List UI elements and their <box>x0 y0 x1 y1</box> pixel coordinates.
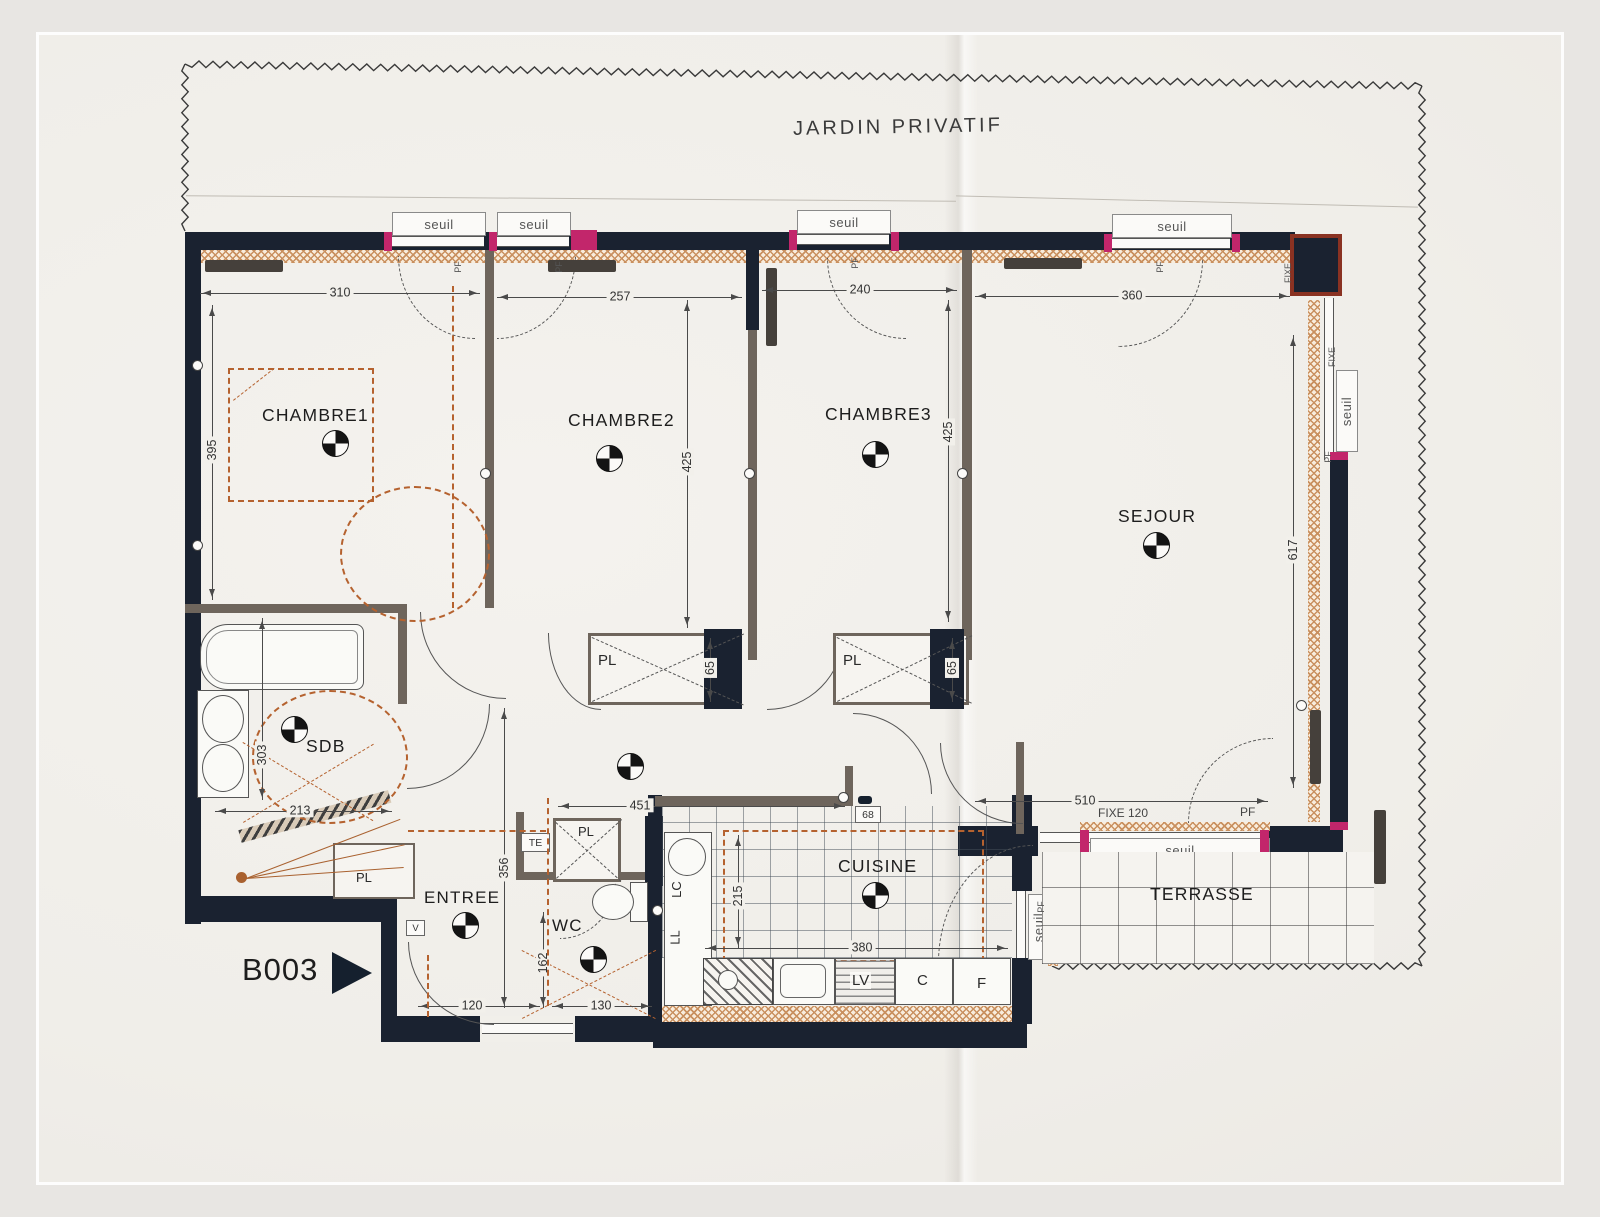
fixe-tag: FIXE <box>1327 347 1337 367</box>
bathtub-inner <box>206 630 358 684</box>
section-symbol <box>617 753 644 780</box>
dim-pass: 68 <box>855 806 881 823</box>
dim-wc-w: 130 <box>588 998 615 1012</box>
cooker-label: C <box>917 972 928 989</box>
dim-hall-h: 356 <box>497 855 511 882</box>
wall-right-bar <box>1330 460 1348 830</box>
fridge-label: F <box>977 975 986 992</box>
lc-label: LC <box>669 881 684 898</box>
room-label-wc: WC <box>552 916 583 936</box>
section-symbol <box>862 441 889 468</box>
dim-ch1-h: 395 <box>205 437 219 464</box>
pl-label: PL <box>598 652 616 669</box>
dim-entry: 120 <box>459 998 486 1012</box>
bathtub <box>200 624 364 690</box>
section-symbol <box>281 716 308 743</box>
garden-label: JARDIN PRIVATIF <box>793 114 1003 141</box>
fixe-tag: FIXE <box>1283 263 1293 283</box>
dim-ch2-w: 257 <box>607 289 634 303</box>
section-symbol <box>580 946 607 973</box>
pf-tag: PF <box>453 261 463 273</box>
dishwasher-label: LV <box>850 972 871 989</box>
heater-point <box>236 872 247 883</box>
dim-sejour-w: 360 <box>1119 288 1146 302</box>
jamb-accent <box>789 230 797 250</box>
furniture-circle-dashed <box>340 486 490 622</box>
jamb-accent <box>489 232 497 251</box>
ll-label: LL <box>668 930 683 944</box>
jamb-accent <box>1232 234 1240 252</box>
terrasse-planter <box>1374 810 1386 884</box>
seuil-label: seuil <box>1112 214 1232 238</box>
fixe120-label: FIXE 120 <box>1098 806 1148 820</box>
dim-hall-w: 451 <box>627 798 654 812</box>
section-symbol <box>452 912 479 939</box>
unit-label: B003 <box>242 952 318 988</box>
outlet-symbol <box>192 540 203 551</box>
floor-plan-scan: JARDIN PRIVATIF seuil seuil seuil seuil … <box>0 0 1600 1217</box>
outlet-symbol <box>957 468 968 479</box>
toilet-bowl <box>592 884 634 920</box>
v-tag: V <box>406 920 425 936</box>
pf-tag: PF <box>1036 901 1046 913</box>
cooktop-burner <box>718 970 738 990</box>
seuil-label: seuil <box>1336 370 1358 452</box>
dim-ch1-w: 310 <box>327 285 354 299</box>
section-symbol <box>596 445 623 472</box>
pf-tag: PF <box>850 257 860 269</box>
jamb-accent <box>1104 234 1112 252</box>
room-label-sdb: SDB <box>306 736 346 757</box>
entry-door-threshold <box>482 1023 573 1034</box>
dim-pl2: 65 <box>703 658 717 678</box>
wall-corner-ne <box>1290 234 1342 296</box>
room-label-entree: ENTREE <box>424 888 500 908</box>
terrasse-tiles <box>1042 852 1374 964</box>
seuil-label: seuil <box>497 212 571 236</box>
jamb-accent <box>384 232 392 251</box>
b003-arrow-icon <box>332 952 372 994</box>
pf-tag: PF <box>1323 451 1333 463</box>
room-label-ch2: CHAMBRE2 <box>568 410 675 431</box>
room-label-ch1: CHAMBRE1 <box>262 405 369 426</box>
radiator <box>1004 258 1082 269</box>
wall-pl-entree-post <box>645 816 663 886</box>
pl-label: PL <box>578 824 594 839</box>
dim-sejour-h: 617 <box>1286 537 1300 564</box>
dim-kitchen-h: 215 <box>731 883 745 910</box>
outlet-symbol <box>744 468 755 479</box>
section-symbol <box>862 882 889 909</box>
turning-circle <box>252 690 408 824</box>
outlet-symbol <box>192 360 203 371</box>
room-label-cuisine: CUISINE <box>838 856 917 877</box>
pl-label: PL <box>356 870 372 885</box>
kitchen-sink-basin <box>780 964 826 998</box>
dim-pl3: 65 <box>945 658 959 678</box>
radiator <box>205 260 283 272</box>
pf-label: PF <box>1240 805 1255 819</box>
wall-kitchen-top <box>655 796 851 806</box>
insulation-kitchen-bottom <box>653 1006 1025 1022</box>
pf-tag: PF <box>1155 261 1165 273</box>
room-label-ch3: CHAMBRE3 <box>825 404 932 425</box>
outlet-symbol <box>652 905 663 916</box>
outlet-symbol <box>838 792 849 803</box>
boiler <box>668 838 706 876</box>
wall-ch2-ch3-post <box>746 250 759 330</box>
dim-kitchen-w: 380 <box>849 940 876 954</box>
dim-line <box>975 801 1268 802</box>
dim-ch3-h: 425 <box>941 419 955 446</box>
insulation-terrasse-top <box>1080 822 1270 831</box>
dim-line <box>948 300 949 622</box>
kitchen-sink-unit <box>773 958 835 1005</box>
window-sejour-right <box>1324 298 1334 460</box>
wall-kitchen-terrasse-lower <box>1012 958 1032 1024</box>
window-ch2 <box>497 236 569 247</box>
te-tag: TE <box>521 833 550 852</box>
bed-dashed <box>228 368 374 502</box>
cooktop <box>703 958 773 1005</box>
radiator <box>1310 710 1321 784</box>
outlet-symbol <box>480 468 491 479</box>
wall-bottom-left <box>185 896 397 922</box>
section-symbol <box>322 430 349 457</box>
wall-bottom-kitchen <box>653 1022 1027 1048</box>
sink <box>202 744 244 792</box>
radiator <box>766 268 777 346</box>
pf-tag: PF <box>554 261 564 273</box>
jamb-accent <box>571 230 597 250</box>
dim-sdb-h: 303 <box>255 742 269 769</box>
service-dashed <box>547 798 549 1006</box>
window-ch1 <box>392 236 484 247</box>
switch-symbol <box>858 796 872 804</box>
dim-ch3-w: 240 <box>847 282 874 296</box>
service-dashed <box>427 955 429 1017</box>
jamb-accent <box>891 232 899 251</box>
window-ch3 <box>797 234 889 245</box>
pl-label: PL <box>843 652 861 669</box>
dim-sejour-s: 510 <box>1072 793 1099 807</box>
section-symbol <box>1143 532 1170 559</box>
dim-line <box>558 806 845 807</box>
room-label-terrasse: TERRASSE <box>1150 884 1254 905</box>
dim-line <box>262 618 263 800</box>
dim-sdb-w: 213 <box>287 803 314 817</box>
room-label-sejour: SEJOUR <box>1118 506 1196 527</box>
window-sejour-top <box>1112 238 1230 249</box>
wardrobe-dashed-line <box>452 286 454 608</box>
sink <box>202 695 244 743</box>
dim-ch2-h: 425 <box>680 449 694 476</box>
jamb-accent <box>1330 822 1348 830</box>
service-dashed <box>408 830 546 832</box>
outlet-symbol <box>1296 700 1307 711</box>
seuil-label: seuil <box>797 210 891 234</box>
wall-ch3-sejour <box>962 250 972 660</box>
wall-left <box>185 232 201 924</box>
seuil-label: seuil <box>392 212 486 236</box>
